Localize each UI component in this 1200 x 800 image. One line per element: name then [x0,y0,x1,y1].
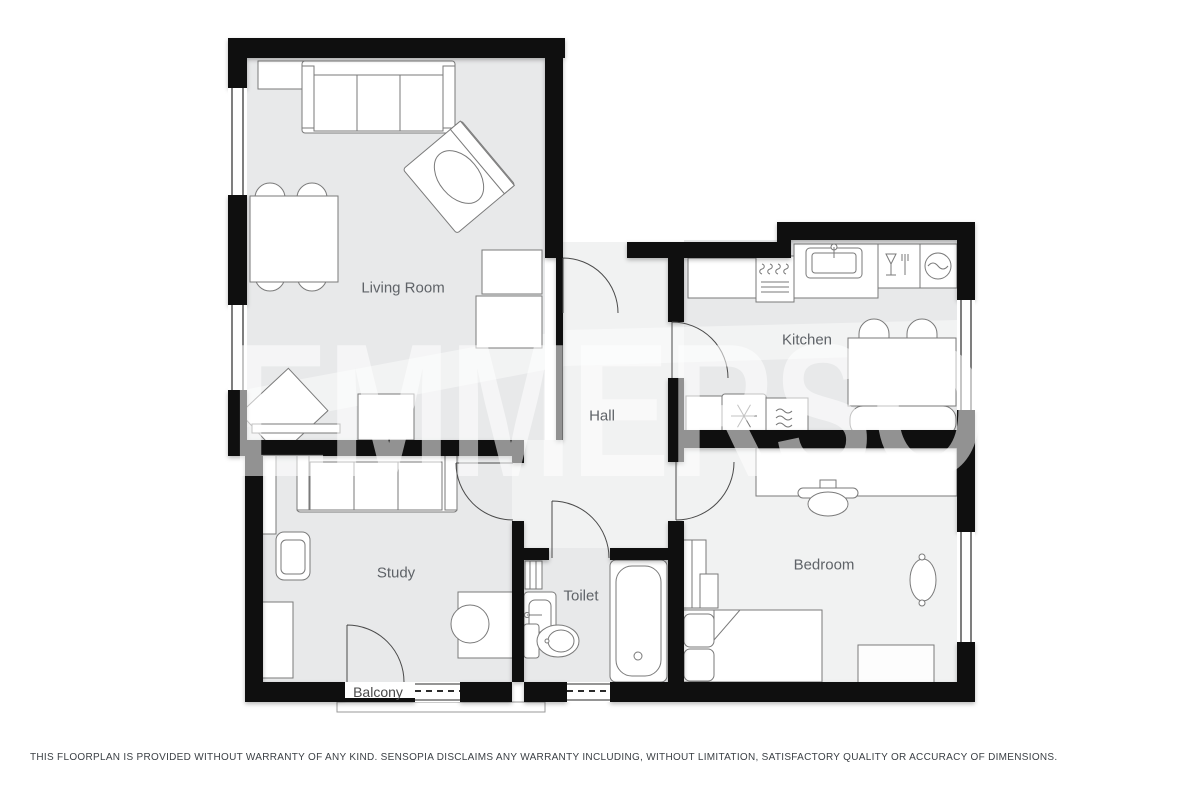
armchair-study [276,532,310,580]
sofa-living-room [302,61,455,133]
window [957,300,975,410]
pillow [684,649,714,681]
window [957,532,975,642]
window [228,88,247,195]
bathtub-icon [610,560,667,682]
disclaimer-text: THIS FLOORPLAN IS PROVIDED WITHOUT WARRA… [30,752,1057,763]
room-label-toilet: Toilet [563,588,598,605]
floorplan-page: EMMERSON Living Room Kitchen Hall Study … [0,0,1200,800]
bed [680,610,822,682]
threshold [415,682,460,702]
room-label-bedroom: Bedroom [794,557,855,574]
low-cabinet [358,394,414,440]
window [228,305,247,390]
threshold [567,682,610,702]
desk-chair [451,605,489,643]
cupboard [476,296,542,348]
radiator-icon [525,561,542,589]
floorplan-canvas [0,0,1200,800]
room-label-living-room: Living Room [361,280,444,297]
sofa-study [297,450,457,512]
dishwasher [878,244,920,288]
room-label-hall: Hall [589,408,615,425]
dining-table-group [250,183,338,291]
cupboard [482,250,542,294]
room-label-study: Study [377,565,415,582]
pillow [684,614,714,647]
tv-screen [252,424,340,433]
washing-machine [920,244,957,288]
rug [858,645,934,687]
room-label-kitchen: Kitchen [782,332,832,349]
desk-chair [808,492,848,516]
counter [688,258,756,298]
balcony-platform [337,702,545,712]
room-label-balcony: Balcony [353,684,403,700]
sideboard [258,61,308,89]
sink-unit [794,244,878,298]
stove [756,256,794,302]
kitchen-table [848,338,956,406]
toilet-wc-icon [524,624,579,658]
dining-table [250,196,338,282]
